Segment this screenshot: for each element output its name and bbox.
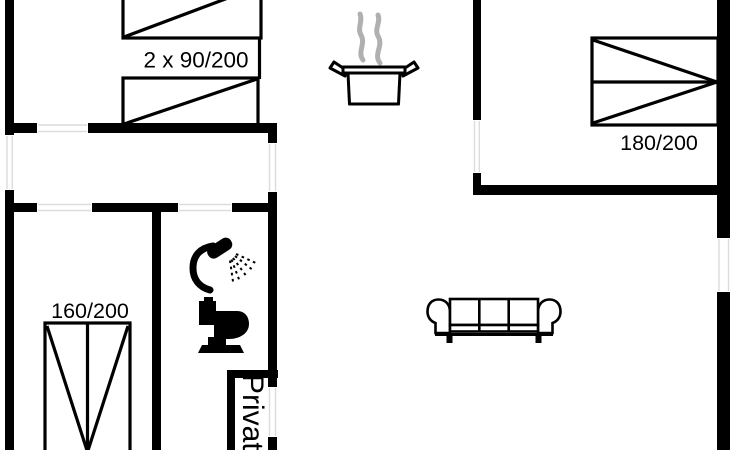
wall-privat-west [227,370,235,450]
toilet-icon [198,297,249,353]
shower-spray [230,254,258,285]
wall-hall-south-stub [5,203,37,212]
wall-hall-north-stub [5,123,37,133]
steam-wisp [377,15,380,63]
wall-exterior-left-lower [5,190,14,450]
bunk-beds-label: 2 x 90/200 [143,48,248,73]
spray-ray [232,260,241,283]
toilet-base [198,345,244,353]
steam-wisps [360,14,380,63]
single-bed-top [123,0,261,38]
floor-plan-canvas: 2 x 90/200 180/200 160/200 Privat [0,0,730,450]
steam-wisp [360,14,363,60]
pot-rim [343,67,405,73]
shower-head [205,235,235,261]
wall-exterior-right-upper [717,0,730,238]
wall-hall-east-lower [268,192,277,387]
cooking-pot-steam-icon [330,14,418,104]
sofa-foot [536,336,542,343]
double-bed-180-label: 180/200 [620,131,698,155]
toilet-bowl [214,311,249,339]
wall-bedroom3-west-upper [473,0,481,120]
wall-hall-south-west [92,203,178,212]
wall-bathroom-west [152,203,161,450]
private-room-label: Privat [236,374,269,450]
double-bed-160 [45,323,130,450]
pot [330,62,418,104]
spray-ray [230,261,234,286]
wall-exterior-left-upper [5,0,14,135]
sofa-backrest [450,299,538,325]
pot-body [348,73,400,104]
toilet-cistern [199,301,216,325]
sofa-arm-right [538,300,561,334]
wall-bedroom3-south [473,185,730,195]
sofa-foot [447,336,453,343]
wall-hall-east-upper [268,123,277,143]
wall-exterior-right-lower [717,292,730,450]
wall-hall-north [88,123,277,133]
sofa-seat [450,325,538,332]
sofa-arm-left [428,300,451,334]
double-bed-160-label: 160/200 [51,299,129,323]
floor-plan: 2 x 90/200 180/200 160/200 Privat [0,0,730,450]
double-bed-180 [592,38,718,125]
wall-hall-south-east [232,203,277,212]
spray-ray [236,254,258,264]
shower-icon [193,235,258,290]
sofa-icon [428,299,561,343]
